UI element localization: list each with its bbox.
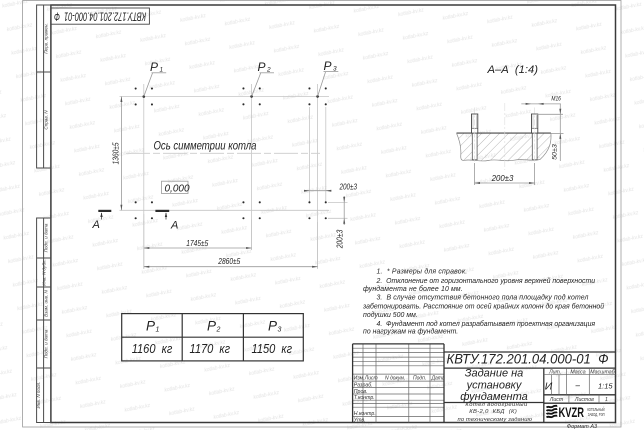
svg-text:Подп.: Подп. xyxy=(413,375,426,381)
svg-text:Н.контр.: Н.контр. xyxy=(354,411,376,417)
svg-text:Инв. N подл.: Инв. N подл. xyxy=(36,382,41,409)
svg-text:Масса: Масса xyxy=(570,369,585,375)
svg-text:1150 кг: 1150 кг xyxy=(252,342,293,356)
svg-text:Ось симметрии котла: Ось симметрии котла xyxy=(154,138,257,152)
svg-text:Изм.: Изм. xyxy=(354,375,365,381)
svg-text:КВ-2,0 КБД (К): КВ-2,0 КБД (К) xyxy=(469,409,517,415)
svg-text:Утв.: Утв. xyxy=(354,418,366,424)
svg-text:1:15: 1:15 xyxy=(598,382,613,391)
svg-text:Лист: Лист xyxy=(549,397,564,403)
svg-text:подушки 500 мм.: подушки 500 мм. xyxy=(363,311,418,319)
svg-text:Подп. и дата: Подп. и дата xyxy=(44,223,49,252)
svg-text:Взам. инв. N: Взам. инв. N xyxy=(44,289,49,316)
svg-text:А–А (1:4): А–А (1:4) xyxy=(486,64,538,76)
svg-text:КВТУ.172.201.04.000-01 Ф: КВТУ.172.201.04.000-01 Ф xyxy=(54,9,146,21)
svg-text:фундамента не более 10 мм.: фундамента не более 10 мм. xyxy=(363,285,463,293)
svg-text:2: 2 xyxy=(216,326,221,333)
svg-text:по нагрузкам на фундамент.: по нагрузкам на фундамент. xyxy=(363,328,458,336)
svg-text:0,000: 0,000 xyxy=(165,183,190,194)
svg-text:3. В случае отсутствия бетонн: 3. В случае отсутствия бетонного пола пл… xyxy=(377,294,589,302)
svg-text:1: 1 xyxy=(160,67,164,74)
svg-text:2. Отклонение от горизонтальн: 2. Отклонение от горизонтального уровня … xyxy=(376,277,596,285)
svg-text:Перв. примен.: Перв. примен. xyxy=(44,23,49,54)
svg-text:1160 кг: 1160 кг xyxy=(132,342,173,356)
svg-text:4. Фундамент под котел разраб: 4. Фундамент под котел разрабатывает про… xyxy=(377,320,596,328)
svg-text:1: 1 xyxy=(605,397,608,403)
svg-text:И: И xyxy=(545,381,553,393)
svg-text:Листов: Листов xyxy=(574,397,594,403)
svg-text:200±3: 200±3 xyxy=(335,229,344,249)
svg-text:Инв. N дубл.: Инв. N дубл. xyxy=(42,259,47,286)
svg-text:М16: М16 xyxy=(551,96,561,103)
svg-text:КВТУ.172.201.04.000-01 Ф: КВТУ.172.201.04.000-01 Ф xyxy=(447,351,609,366)
svg-text:P: P xyxy=(150,60,158,74)
svg-text:Формат А3: Формат А3 xyxy=(567,424,598,430)
svg-text:N докум.: N докум. xyxy=(385,375,405,381)
svg-text:1170 кг: 1170 кг xyxy=(190,342,231,356)
svg-text:–: – xyxy=(575,381,581,390)
svg-text:2: 2 xyxy=(266,67,271,74)
svg-text:1745±5: 1745±5 xyxy=(186,239,208,248)
svg-text:3: 3 xyxy=(278,326,282,333)
svg-text:1: 1 xyxy=(156,326,160,333)
svg-text:P: P xyxy=(268,318,277,333)
svg-text:Масштаб: Масштаб xyxy=(590,369,615,375)
svg-text:3: 3 xyxy=(333,66,337,73)
svg-text:P: P xyxy=(207,318,216,333)
svg-text:1. * Размеры для справок.: 1. * Размеры для справок. xyxy=(377,268,468,276)
svg-text:A: A xyxy=(92,219,100,231)
svg-text:200±3: 200±3 xyxy=(491,174,514,183)
svg-text:2860±5: 2860±5 xyxy=(217,257,240,266)
svg-text:1360±5: 1360±5 xyxy=(111,142,120,164)
svg-text:A: A xyxy=(170,220,178,232)
svg-text:Справ. N: Справ. N xyxy=(44,110,49,130)
svg-text:P: P xyxy=(146,318,155,333)
svg-text:Т.контр.: Т.контр. xyxy=(354,395,375,401)
svg-text:Котел водогрейный: Котел водогрейный xyxy=(465,401,528,408)
svg-text:P: P xyxy=(324,59,332,73)
svg-text:забетонировать. Расстояние от: забетонировать. Расстояние от осей крайн… xyxy=(362,303,604,311)
svg-text:ЗАВОД, РЭП: ЗАВОД, РЭП xyxy=(588,412,605,417)
svg-text:по техническому заданию: по техническому заданию xyxy=(458,417,533,423)
svg-text:установку: установку xyxy=(466,379,523,391)
svg-text:200±3: 200±3 xyxy=(339,183,358,192)
svg-text:Лит.: Лит. xyxy=(548,369,561,375)
svg-text:KVZR: KVZR xyxy=(559,404,585,420)
svg-text:Пров.: Пров. xyxy=(354,389,368,395)
svg-text:Подп. и дата: Подп. и дата xyxy=(44,329,49,358)
svg-text:Дата: Дата xyxy=(431,375,445,381)
svg-text:50±3: 50±3 xyxy=(551,144,558,160)
svg-text:Задание на: Задание на xyxy=(465,368,524,380)
svg-text:P: P xyxy=(258,60,266,74)
svg-text:Лист: Лист xyxy=(364,375,378,381)
svg-text:Разраб.: Разраб. xyxy=(354,382,373,388)
